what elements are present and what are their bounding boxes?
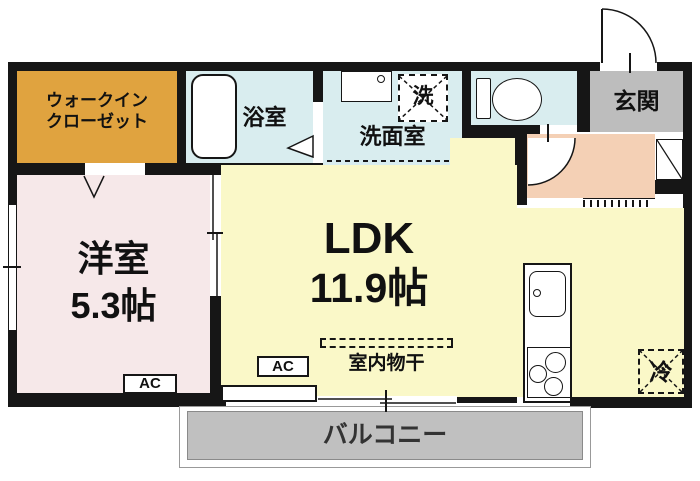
washroom-label: 洗面室 [323, 123, 462, 151]
stove-burner-icon [529, 365, 547, 383]
walk-in-closet-line1: ウォークイン [17, 90, 177, 111]
wall [683, 62, 692, 408]
shoe-cabinet [656, 139, 683, 180]
walk-in-closet-label: ウォークイン クローゼット [17, 90, 177, 133]
wall [8, 163, 85, 175]
ldk-label: LDK 11.9帖 [221, 214, 517, 312]
ac-ldk: AC [257, 356, 309, 377]
washroom-faucet-icon [377, 75, 385, 83]
ldk-name: LDK [221, 214, 517, 265]
indoor-drying-label: 室内物干 [320, 352, 453, 376]
washer-label: 洗 [398, 84, 448, 110]
western-room-label: 洋室 5.3帖 [17, 236, 210, 330]
sliding-door-lines [213, 175, 217, 296]
washroom-sink [341, 71, 392, 102]
wall [653, 180, 692, 194]
floor-plan: バルコニー [0, 0, 700, 481]
stove-burner-icon [545, 352, 566, 373]
entrance-hall [527, 134, 655, 198]
toilet-bowl [492, 78, 542, 121]
window [8, 205, 17, 330]
kitchen-faucet-icon [533, 289, 541, 297]
refrigerator-label: 冷 [638, 358, 684, 387]
sliding-door-to-balcony [317, 396, 457, 405]
wall [177, 71, 186, 163]
wall [8, 62, 600, 71]
western-room-name: 洋室 [17, 236, 210, 283]
entrance-door-arc [602, 9, 656, 63]
toilet-tank [476, 78, 491, 119]
bathroom-door-opening [313, 102, 323, 163]
ac-western-room: AC [123, 374, 177, 394]
stove-burner-icon [544, 377, 563, 396]
entrance-label: 玄関 [590, 87, 683, 116]
wall [8, 393, 221, 407]
window [221, 385, 317, 402]
indoor-drying-rail [320, 338, 453, 348]
wall [145, 163, 187, 175]
ldk-size: 11.9帖 [221, 265, 517, 312]
entrance-step-hatch [583, 200, 653, 207]
balcony-label: バルコニー [187, 420, 583, 451]
western-room-size: 5.3帖 [17, 283, 210, 330]
wall [577, 62, 590, 132]
bathroom-label: 浴室 [216, 104, 313, 132]
walk-in-closet-line2: クローゼット [17, 111, 177, 132]
